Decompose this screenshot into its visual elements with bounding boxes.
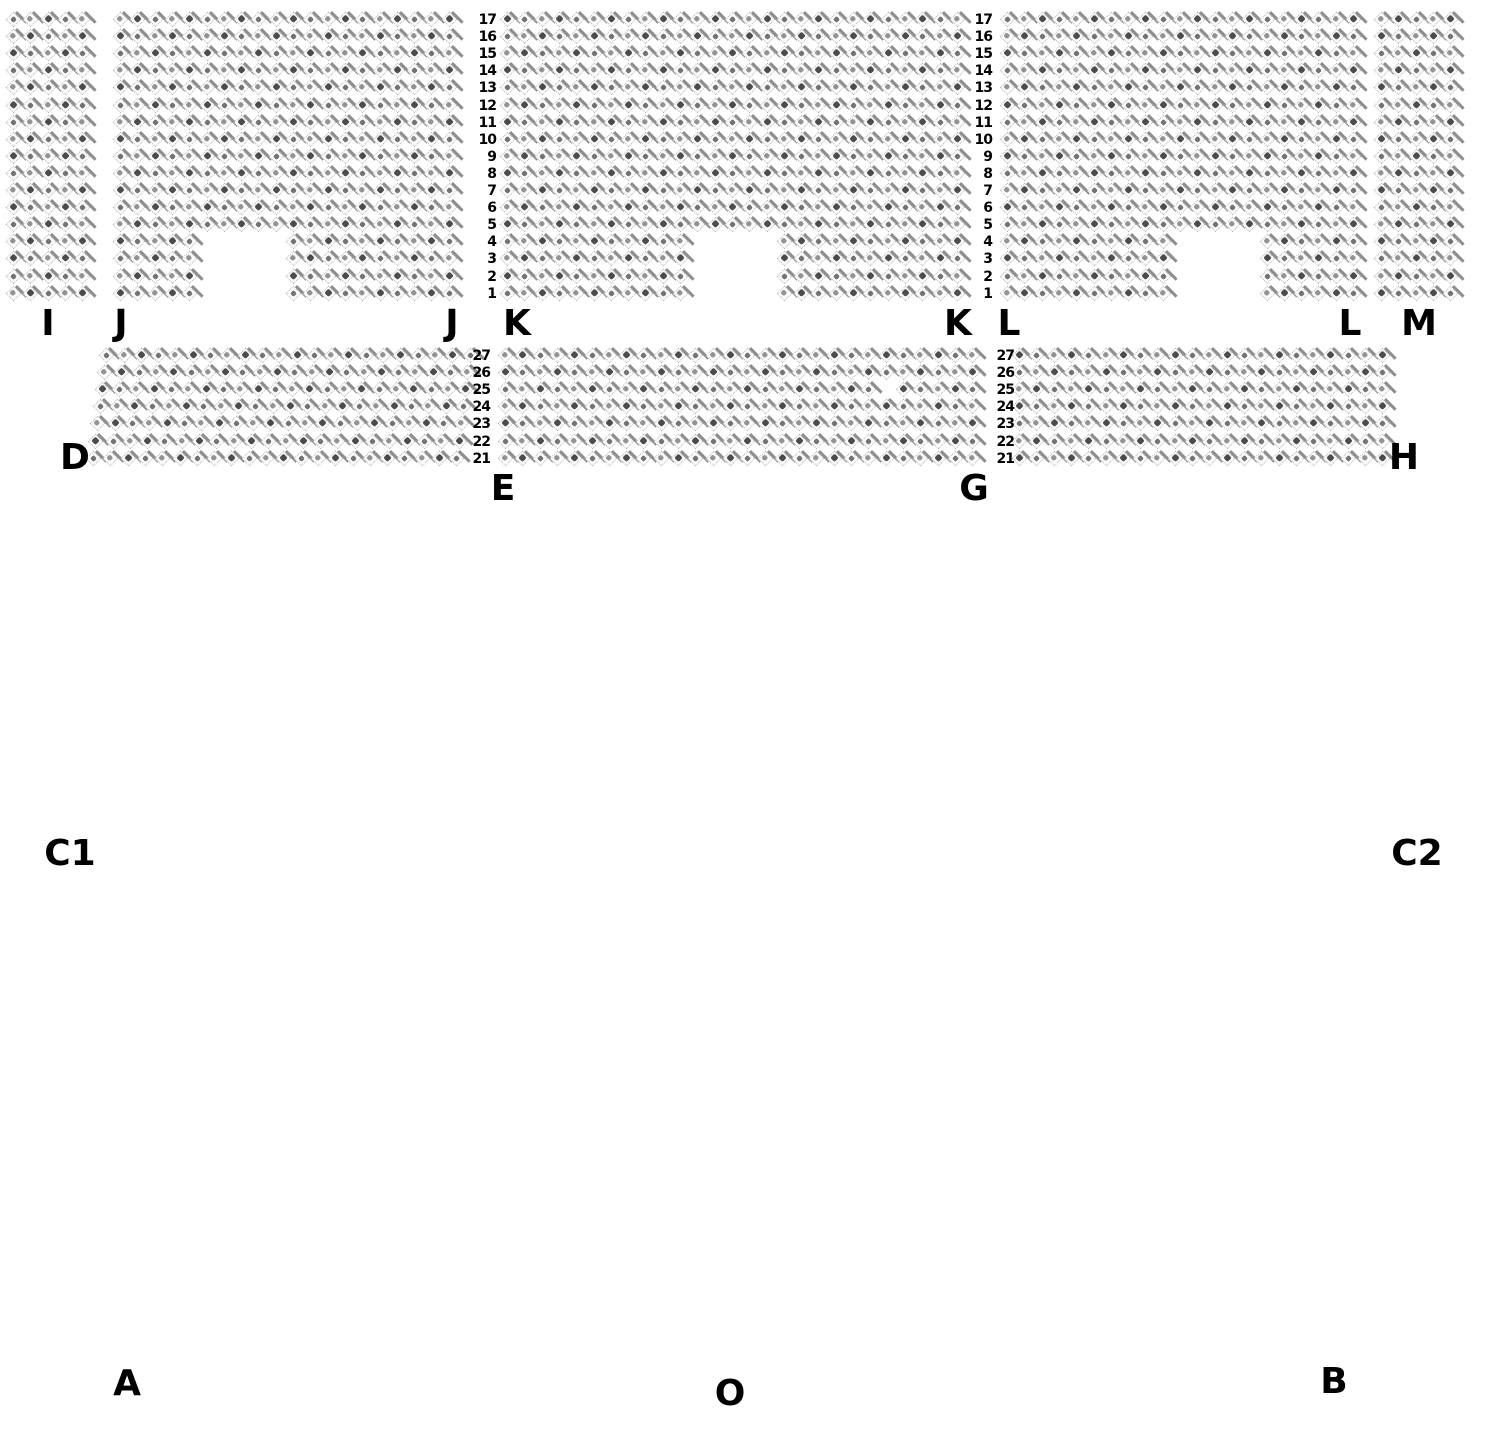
seat-D-r21-c22[interactable] — [449, 450, 465, 466]
seat-GH-r24-c11[interactable] — [1185, 399, 1201, 415]
seat-GH-r23-c2[interactable] — [1029, 416, 1045, 432]
seat-J-r11-c9[interactable] — [251, 114, 267, 130]
seat-K-r16-c21[interactable] — [846, 29, 862, 45]
seat-M-r17-c2[interactable] — [1391, 12, 1407, 28]
seat-L-r17-c15[interactable] — [1242, 12, 1258, 28]
seat-K-r9-c11[interactable] — [673, 149, 689, 165]
seat-L-r17-c1[interactable] — [1000, 12, 1016, 28]
seat-K-r14-c18[interactable] — [794, 63, 810, 79]
seat-K-r12-c9[interactable] — [638, 97, 654, 113]
seat-K-r7-c21[interactable] — [846, 183, 862, 199]
seat-E-r27-c27[interactable] — [948, 348, 964, 364]
seat-J-r11-c17[interactable] — [390, 114, 406, 130]
seat-I-r10-c2[interactable] — [23, 131, 39, 147]
seat-L-r10-c16[interactable] — [1259, 131, 1275, 147]
seat-J-r10-c5[interactable] — [182, 131, 198, 147]
seat-D-r25-c10[interactable] — [250, 382, 266, 398]
seat-K-r15-c4[interactable] — [552, 46, 568, 62]
seat-K-r8-c3[interactable] — [534, 166, 550, 182]
seat-E-r21-c12[interactable] — [688, 450, 704, 466]
seat-GH-r25-c5[interactable] — [1081, 382, 1097, 398]
seat-J-r8-c9[interactable] — [251, 166, 267, 182]
seat-K-r13-c3[interactable] — [534, 80, 550, 96]
seat-E-r24-c18[interactable] — [792, 399, 808, 415]
seat-E-r22-c6[interactable] — [584, 433, 600, 449]
seat-J-r13-c8[interactable] — [234, 80, 250, 96]
seat-M-r12-c4[interactable] — [1426, 97, 1442, 113]
seat-L-r7-c5[interactable] — [1069, 183, 1085, 199]
seat-E-r24-c3[interactable] — [532, 399, 548, 415]
seat-D-r24-c19[interactable] — [404, 399, 420, 415]
seat-D-r27-c19[interactable] — [410, 348, 426, 364]
seat-M-r8-c1[interactable] — [1374, 166, 1390, 182]
seat-K-r4-c26[interactable] — [932, 234, 948, 250]
seat-J-r9-c16[interactable] — [372, 149, 388, 165]
seat-K-r14-c12[interactable] — [690, 63, 706, 79]
seat-K-r9-c25[interactable] — [915, 149, 931, 165]
seat-GH-r25-c6[interactable] — [1098, 382, 1114, 398]
seat-D-r25-c3[interactable] — [129, 382, 145, 398]
seat-J-r2-c17[interactable] — [390, 268, 406, 284]
seat-J-r17-c10[interactable] — [268, 12, 284, 28]
seat-J-r7-c4[interactable] — [165, 183, 181, 199]
seat-K-r12-c13[interactable] — [707, 97, 723, 113]
seat-E-r22-c7[interactable] — [602, 433, 618, 449]
seat-E-r23-c18[interactable] — [792, 416, 808, 432]
seat-K-r7-c26[interactable] — [932, 183, 948, 199]
seat-L-r16-c16[interactable] — [1259, 29, 1275, 45]
seat-J-r14-c8[interactable] — [234, 63, 250, 79]
seat-K-r13-c2[interactable] — [517, 80, 533, 96]
seat-K-r16-c20[interactable] — [828, 29, 844, 45]
seat-K-r8-c8[interactable] — [621, 166, 637, 182]
seat-K-r14-c27[interactable] — [950, 63, 966, 79]
seat-E-r21-c7[interactable] — [602, 450, 618, 466]
seat-J-r16-c11[interactable] — [286, 29, 302, 45]
seat-K-r9-c4[interactable] — [552, 149, 568, 165]
seat-J-r6-c20[interactable] — [441, 200, 457, 216]
seat-L-r5-c6[interactable] — [1086, 217, 1102, 233]
seat-E-r23-c9[interactable] — [636, 416, 652, 432]
seat-J-r11-c10[interactable] — [268, 114, 284, 130]
seat-K-r6-c3[interactable] — [534, 200, 550, 216]
seat-D-r21-c11[interactable] — [259, 450, 275, 466]
seat-L-r17-c21[interactable] — [1346, 12, 1362, 28]
seat-J-r15-c3[interactable] — [147, 46, 163, 62]
seat-J-r7-c10[interactable] — [268, 183, 284, 199]
seat-D-r25-c17[interactable] — [371, 382, 387, 398]
seat-GH-r26-c6[interactable] — [1098, 365, 1114, 381]
seat-D-r24-c6[interactable] — [179, 399, 195, 415]
seat-J-r11-c4[interactable] — [165, 114, 181, 130]
seat-GH-r24-c8[interactable] — [1133, 399, 1149, 415]
seat-K-r5-c24[interactable] — [898, 217, 914, 233]
seat-E-r24-c8[interactable] — [619, 399, 635, 415]
seat-E-r26-c17[interactable] — [775, 365, 791, 381]
seat-D-r27-c1[interactable] — [99, 348, 115, 364]
seat-J-r14-c5[interactable] — [182, 63, 198, 79]
seat-J-r3-c2[interactable] — [130, 251, 146, 267]
seat-M-r13-c1[interactable] — [1374, 80, 1390, 96]
seat-L-r2-c17[interactable] — [1277, 268, 1293, 284]
seat-E-r22-c23[interactable] — [878, 433, 894, 449]
seat-D-r23-c4[interactable] — [142, 416, 158, 432]
seat-E-r21-c1[interactable] — [498, 450, 514, 466]
seat-L-r9-c14[interactable] — [1225, 149, 1241, 165]
seat-L-r6-c1[interactable] — [1000, 200, 1016, 216]
seat-E-r23-c15[interactable] — [740, 416, 756, 432]
seat-J-r7-c2[interactable] — [130, 183, 146, 199]
seat-K-r9-c7[interactable] — [604, 149, 620, 165]
seat-K-r6-c20[interactable] — [828, 200, 844, 216]
seat-K-r1-c11[interactable] — [673, 285, 689, 301]
seat-I-r1-c4[interactable] — [58, 285, 74, 301]
seat-E-r23-c11[interactable] — [671, 416, 687, 432]
seat-J-r10-c12[interactable] — [303, 131, 319, 147]
seat-K-r7-c19[interactable] — [811, 183, 827, 199]
seat-J-r11-c12[interactable] — [303, 114, 319, 130]
seat-K-r9-c17[interactable] — [777, 149, 793, 165]
seat-L-r2-c3[interactable] — [1034, 268, 1050, 284]
seat-J-r10-c2[interactable] — [130, 131, 146, 147]
seat-GH-r25-c3[interactable] — [1046, 382, 1062, 398]
seat-L-r17-c17[interactable] — [1277, 12, 1293, 28]
seat-I-r4-c2[interactable] — [23, 234, 39, 250]
seat-D-r25-c1[interactable] — [95, 382, 111, 398]
seat-J-r12-c9[interactable] — [251, 97, 267, 113]
seat-K-r2-c26[interactable] — [932, 268, 948, 284]
seat-K-r16-c16[interactable] — [759, 29, 775, 45]
seat-D-r26-c17[interactable] — [374, 365, 390, 381]
seat-K-r16-c3[interactable] — [534, 29, 550, 45]
seat-E-r22-c18[interactable] — [792, 433, 808, 449]
seat-L-r13-c12[interactable] — [1190, 80, 1206, 96]
seat-I-r9-c2[interactable] — [23, 149, 39, 165]
seat-L-r12-c21[interactable] — [1346, 97, 1362, 113]
seat-E-r25-c17[interactable] — [775, 382, 791, 398]
seat-E-r23-c19[interactable] — [809, 416, 825, 432]
seat-D-r25-c5[interactable] — [164, 382, 180, 398]
seat-M-r5-c5[interactable] — [1443, 217, 1459, 233]
seat-D-r22-c13[interactable] — [296, 433, 312, 449]
seat-K-r7-c4[interactable] — [552, 183, 568, 199]
seat-J-r6-c10[interactable] — [268, 200, 284, 216]
seat-E-r22-c5[interactable] — [567, 433, 583, 449]
seat-K-r16-c9[interactable] — [638, 29, 654, 45]
seat-GH-r24-c3[interactable] — [1046, 399, 1062, 415]
seat-J-r8-c11[interactable] — [286, 166, 302, 182]
seat-K-r2-c20[interactable] — [828, 268, 844, 284]
seat-K-r9-c10[interactable] — [655, 149, 671, 165]
seat-J-r8-c3[interactable] — [147, 166, 163, 182]
seat-J-r12-c18[interactable] — [407, 97, 423, 113]
seat-L-r14-c4[interactable] — [1052, 63, 1068, 79]
seat-L-r8-c17[interactable] — [1277, 166, 1293, 182]
seat-K-r7-c8[interactable] — [621, 183, 637, 199]
seat-M-r16-c2[interactable] — [1391, 29, 1407, 45]
seat-I-r1-c3[interactable] — [40, 285, 56, 301]
seat-K-r1-c17[interactable] — [777, 285, 793, 301]
seat-D-r24-c7[interactable] — [196, 399, 212, 415]
seat-GH-r27-c9[interactable] — [1150, 348, 1166, 364]
seat-I-r14-c1[interactable] — [6, 63, 22, 79]
seat-L-r13-c6[interactable] — [1086, 80, 1102, 96]
seat-D-r26-c2[interactable] — [114, 365, 130, 381]
seat-GH-r21-c5[interactable] — [1081, 450, 1097, 466]
seat-I-r12-c3[interactable] — [40, 97, 56, 113]
seat-K-r7-c5[interactable] — [569, 183, 585, 199]
seat-M-r12-c1[interactable] — [1374, 97, 1390, 113]
seat-E-r21-c22[interactable] — [861, 450, 877, 466]
seat-J-r10-c8[interactable] — [234, 131, 250, 147]
seat-L-r7-c4[interactable] — [1052, 183, 1068, 199]
seat-K-r6-c22[interactable] — [863, 200, 879, 216]
seat-K-r15-c8[interactable] — [621, 46, 637, 62]
seat-L-r12-c17[interactable] — [1277, 97, 1293, 113]
seat-E-r22-c3[interactable] — [532, 433, 548, 449]
seat-J-r6-c17[interactable] — [390, 200, 406, 216]
seat-K-r10-c2[interactable] — [517, 131, 533, 147]
seat-L-r15-c7[interactable] — [1104, 46, 1120, 62]
seat-L-r7-c16[interactable] — [1259, 183, 1275, 199]
seat-J-r1-c5[interactable] — [182, 285, 198, 301]
seat-J-r17-c1[interactable] — [113, 12, 129, 28]
seat-J-r2-c14[interactable] — [338, 268, 354, 284]
seat-GH-r26-c11[interactable] — [1185, 365, 1201, 381]
seat-I-r12-c1[interactable] — [6, 97, 22, 113]
seat-K-r8-c17[interactable] — [777, 166, 793, 182]
seat-E-r24-c10[interactable] — [653, 399, 669, 415]
seat-GH-r27-c22[interactable] — [1375, 348, 1391, 364]
seat-L-r6-c7[interactable] — [1104, 200, 1120, 216]
seat-J-r15-c11[interactable] — [286, 46, 302, 62]
seat-J-r7-c7[interactable] — [217, 183, 233, 199]
seat-J-r6-c14[interactable] — [338, 200, 354, 216]
seat-D-r23-c9[interactable] — [229, 416, 245, 432]
seat-K-r4-c17[interactable] — [777, 234, 793, 250]
seat-E-r27-c9[interactable] — [636, 348, 652, 364]
seat-J-r12-c4[interactable] — [165, 97, 181, 113]
seat-GH-r27-c7[interactable] — [1116, 348, 1132, 364]
seat-E-r22-c14[interactable] — [723, 433, 739, 449]
seat-M-r1-c2[interactable] — [1391, 285, 1407, 301]
seat-D-r21-c7[interactable] — [190, 450, 206, 466]
seat-J-r5-c5[interactable] — [182, 217, 198, 233]
seat-I-r17-c1[interactable] — [6, 12, 22, 28]
seat-J-r13-c14[interactable] — [338, 80, 354, 96]
seat-L-r9-c20[interactable] — [1328, 149, 1344, 165]
seat-I-r5-c1[interactable] — [6, 217, 22, 233]
seat-L-r16-c11[interactable] — [1173, 29, 1189, 45]
seat-K-r13-c20[interactable] — [828, 80, 844, 96]
seat-K-r1-c19[interactable] — [811, 285, 827, 301]
seat-L-r10-c21[interactable] — [1346, 131, 1362, 147]
seat-GH-r26-c18[interactable] — [1306, 365, 1322, 381]
seat-GH-r25-c9[interactable] — [1150, 382, 1166, 398]
seat-J-r6-c5[interactable] — [182, 200, 198, 216]
seat-E-r26-c25[interactable] — [913, 365, 929, 381]
seat-E-r26-c11[interactable] — [671, 365, 687, 381]
seat-M-r4-c2[interactable] — [1391, 234, 1407, 250]
seat-K-r3-c9[interactable] — [638, 251, 654, 267]
seat-E-r24-c2[interactable] — [515, 399, 531, 415]
seat-K-r13-c4[interactable] — [552, 80, 568, 96]
seat-K-r2-c4[interactable] — [552, 268, 568, 284]
seat-I-r8-c1[interactable] — [6, 166, 22, 182]
seat-J-r6-c8[interactable] — [234, 200, 250, 216]
seat-E-r21-c6[interactable] — [584, 450, 600, 466]
seat-L-r2-c7[interactable] — [1104, 268, 1120, 284]
seat-K-r13-c21[interactable] — [846, 80, 862, 96]
seat-E-r25-c15[interactable] — [740, 382, 756, 398]
seat-M-r9-c1[interactable] — [1374, 149, 1390, 165]
seat-D-r22-c21[interactable] — [434, 433, 450, 449]
seat-K-r17-c21[interactable] — [846, 12, 862, 28]
seat-GH-r23-c12[interactable] — [1202, 416, 1218, 432]
seat-K-r5-c7[interactable] — [604, 217, 620, 233]
seat-I-r10-c4[interactable] — [58, 131, 74, 147]
seat-L-r8-c8[interactable] — [1121, 166, 1137, 182]
seat-K-r5-c10[interactable] — [655, 217, 671, 233]
seat-E-r24-c7[interactable] — [602, 399, 618, 415]
seat-K-r10-c5[interactable] — [569, 131, 585, 147]
seat-M-r13-c2[interactable] — [1391, 80, 1407, 96]
seat-J-r14-c14[interactable] — [338, 63, 354, 79]
seat-K-r7-c22[interactable] — [863, 183, 879, 199]
seat-J-r9-c14[interactable] — [338, 149, 354, 165]
seat-K-r16-c12[interactable] — [690, 29, 706, 45]
seat-J-r1-c13[interactable] — [320, 285, 336, 301]
seat-J-r6-c2[interactable] — [130, 200, 146, 216]
seat-K-r14-c10[interactable] — [655, 63, 671, 79]
seat-K-r10-c14[interactable] — [725, 131, 741, 147]
seat-E-r25-c16[interactable] — [757, 382, 773, 398]
seat-J-r2-c12[interactable] — [303, 268, 319, 284]
seat-K-r2-c23[interactable] — [880, 268, 896, 284]
seat-K-r10-c23[interactable] — [880, 131, 896, 147]
seat-GH-r23-c4[interactable] — [1064, 416, 1080, 432]
seat-J-r12-c8[interactable] — [234, 97, 250, 113]
seat-L-r4-c4[interactable] — [1052, 234, 1068, 250]
seat-E-r26-c27[interactable] — [948, 365, 964, 381]
seat-L-r11-c8[interactable] — [1121, 114, 1137, 130]
seat-D-r26-c15[interactable] — [339, 365, 355, 381]
seat-K-r9-c22[interactable] — [863, 149, 879, 165]
seat-D-r25-c14[interactable] — [319, 382, 335, 398]
seat-J-r15-c18[interactable] — [407, 46, 423, 62]
seat-K-r17-c7[interactable] — [604, 12, 620, 28]
seat-GH-r25-c20[interactable] — [1340, 382, 1356, 398]
seat-L-r7-c8[interactable] — [1121, 183, 1137, 199]
seat-D-r22-c20[interactable] — [417, 433, 433, 449]
seat-I-r5-c2[interactable] — [23, 217, 39, 233]
seat-K-r8-c19[interactable] — [811, 166, 827, 182]
seat-L-r13-c7[interactable] — [1104, 80, 1120, 96]
seat-GH-r21-c15[interactable] — [1254, 450, 1270, 466]
seat-I-r6-c4[interactable] — [58, 200, 74, 216]
seat-K-r10-c27[interactable] — [950, 131, 966, 147]
seat-E-r27-c28[interactable] — [965, 348, 981, 364]
seat-GH-r21-c17[interactable] — [1289, 450, 1305, 466]
seat-E-r23-c24[interactable] — [896, 416, 912, 432]
seat-D-r26-c8[interactable] — [218, 365, 234, 381]
seat-L-r8-c12[interactable] — [1190, 166, 1206, 182]
seat-L-r14-c15[interactable] — [1242, 63, 1258, 79]
seat-D-r25-c15[interactable] — [337, 382, 353, 398]
seat-GH-r26-c8[interactable] — [1133, 365, 1149, 381]
seat-GH-r27-c11[interactable] — [1185, 348, 1201, 364]
seat-K-r12-c12[interactable] — [690, 97, 706, 113]
seat-L-r6-c18[interactable] — [1294, 200, 1310, 216]
seat-L-r9-c21[interactable] — [1346, 149, 1362, 165]
seat-E-r23-c5[interactable] — [567, 416, 583, 432]
seat-I-r16-c4[interactable] — [58, 29, 74, 45]
seat-I-r6-c3[interactable] — [40, 200, 56, 216]
seat-D-r22-c3[interactable] — [123, 433, 139, 449]
seat-K-r6-c24[interactable] — [898, 200, 914, 216]
seat-D-r22-c4[interactable] — [140, 433, 156, 449]
seat-K-r2-c1[interactable] — [500, 268, 516, 284]
seat-I-r4-c1[interactable] — [6, 234, 22, 250]
seat-E-r21-c24[interactable] — [896, 450, 912, 466]
seat-D-r23-c17[interactable] — [367, 416, 383, 432]
seat-D-r26-c4[interactable] — [149, 365, 165, 381]
seat-K-r6-c8[interactable] — [621, 200, 637, 216]
seat-L-r15-c17[interactable] — [1277, 46, 1293, 62]
seat-K-r1-c21[interactable] — [846, 285, 862, 301]
seat-I-r7-c1[interactable] — [6, 183, 22, 199]
seat-J-r17-c14[interactable] — [338, 12, 354, 28]
seat-GH-r26-c14[interactable] — [1237, 365, 1253, 381]
seat-D-r23-c21[interactable] — [436, 416, 452, 432]
seat-M-r4-c4[interactable] — [1426, 234, 1442, 250]
seat-J-r1-c4[interactable] — [165, 285, 181, 301]
seat-D-r22-c16[interactable] — [347, 433, 363, 449]
seat-J-r17-c20[interactable] — [441, 12, 457, 28]
seat-M-r10-c1[interactable] — [1374, 131, 1390, 147]
seat-E-r25-c25[interactable] — [913, 382, 929, 398]
seat-K-r14-c6[interactable] — [586, 63, 602, 79]
seat-K-r13-c6[interactable] — [586, 80, 602, 96]
seat-D-r25-c6[interactable] — [181, 382, 197, 398]
seat-L-r13-c9[interactable] — [1138, 80, 1154, 96]
seat-J-r9-c19[interactable] — [424, 149, 440, 165]
seat-L-r14-c5[interactable] — [1069, 63, 1085, 79]
seat-E-r21-c2[interactable] — [515, 450, 531, 466]
seat-J-r4-c19[interactable] — [424, 234, 440, 250]
seat-D-r23-c13[interactable] — [298, 416, 314, 432]
seat-J-r8-c4[interactable] — [165, 166, 181, 182]
seat-GH-r26-c22[interactable] — [1375, 365, 1391, 381]
seat-E-r27-c7[interactable] — [602, 348, 618, 364]
seat-L-r15-c2[interactable] — [1017, 46, 1033, 62]
seat-L-r15-c19[interactable] — [1311, 46, 1327, 62]
seat-J-r17-c5[interactable] — [182, 12, 198, 28]
seat-K-r11-c5[interactable] — [569, 114, 585, 130]
seat-K-r6-c14[interactable] — [725, 200, 741, 216]
seat-K-r16-c7[interactable] — [604, 29, 620, 45]
seat-E-r26-c10[interactable] — [653, 365, 669, 381]
seat-L-r16-c8[interactable] — [1121, 29, 1137, 45]
seat-L-r11-c18[interactable] — [1294, 114, 1310, 130]
seat-K-r3-c25[interactable] — [915, 251, 931, 267]
seat-L-r6-c2[interactable] — [1017, 200, 1033, 216]
seat-GH-r22-c6[interactable] — [1098, 433, 1114, 449]
seat-L-r5-c12[interactable] — [1190, 217, 1206, 233]
seat-GH-r23-c8[interactable] — [1133, 416, 1149, 432]
seat-E-r27-c20[interactable] — [826, 348, 842, 364]
seat-L-r15-c8[interactable] — [1121, 46, 1137, 62]
